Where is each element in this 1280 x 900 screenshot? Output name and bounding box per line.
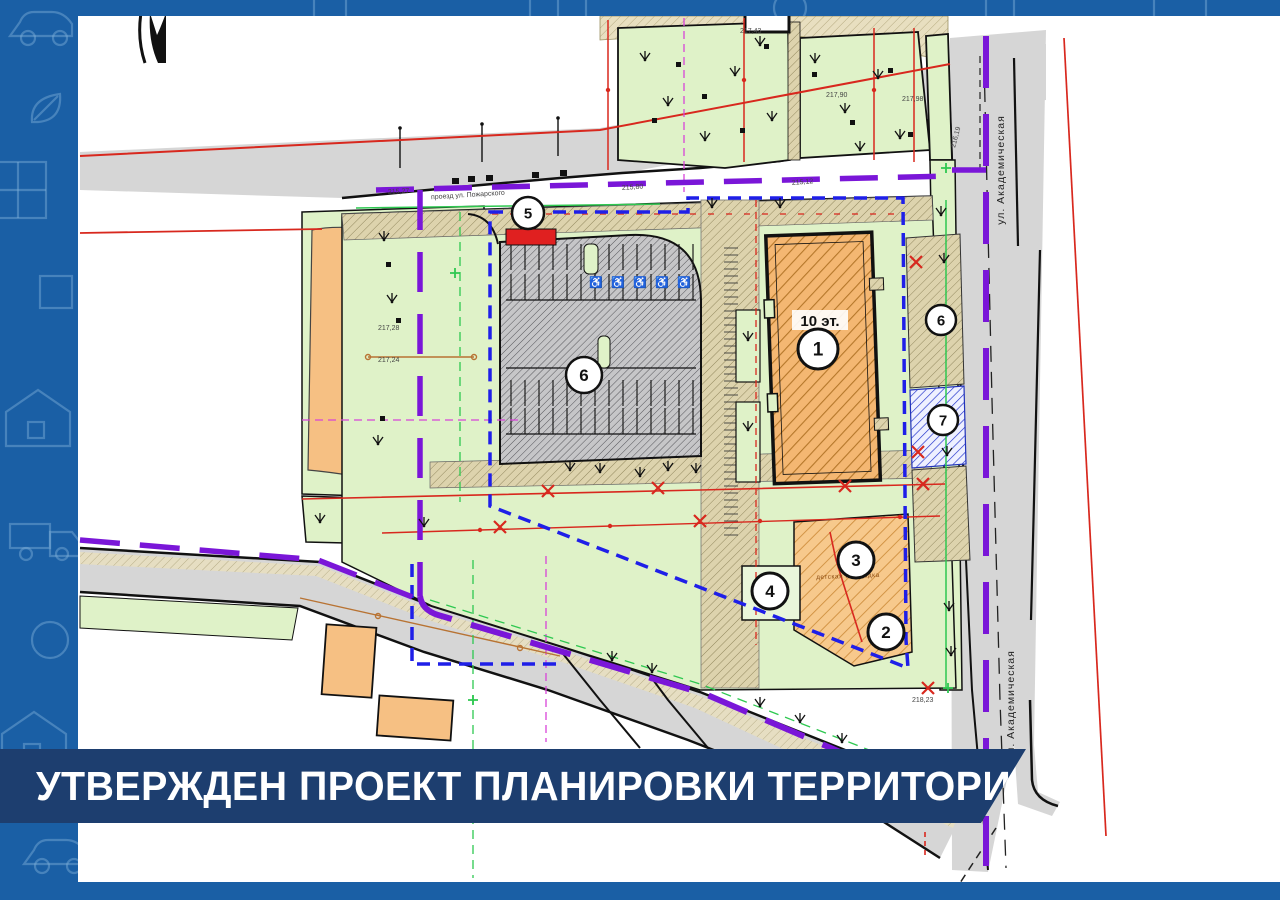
- zone-marker-4: 4: [752, 573, 788, 609]
- zone-marker-2: 2: [868, 614, 904, 650]
- building-1-floors-label: 10 эт.: [800, 313, 839, 330]
- banner-title: УТВЕРЖДЕН ПРОЕКТ ПЛАНИРОВКИ ТЕРРИТОРИИ: [36, 763, 1040, 810]
- elevation-label: 217,90: [826, 92, 848, 99]
- svg-text:6: 6: [579, 366, 588, 385]
- elevation-label: 217,98: [902, 96, 924, 103]
- zone-marker-3: 3: [838, 542, 874, 578]
- elevation-label: 217,43: [740, 28, 762, 35]
- zone-marker-1: 1: [798, 329, 838, 369]
- building-southwest: [322, 624, 377, 697]
- svg-text:6: 6: [937, 313, 945, 330]
- zone-east-strips: [906, 234, 970, 562]
- building-southwest-2: [377, 695, 454, 740]
- street-label-akademicheskaya-north: ул. Академическая: [995, 115, 1007, 225]
- elevation-label: 218,23: [912, 697, 934, 704]
- elevation-label: 217,28: [378, 325, 400, 332]
- elevation-label: 215,80: [622, 184, 644, 192]
- svg-text:7: 7: [939, 413, 947, 430]
- street-label-akademicheskaya-south: ул. Академическая: [1005, 650, 1017, 760]
- svg-text:1: 1: [813, 340, 824, 361]
- svg-text:♿: ♿: [655, 276, 669, 289]
- announcement-card: ♿ ♿ ♿ ♿ ♿ 10 эт.: [0, 0, 1280, 900]
- svg-text:4: 4: [765, 582, 775, 601]
- svg-text:♿: ♿: [589, 276, 603, 289]
- elevation-label: 217,24: [378, 357, 400, 364]
- svg-text:3: 3: [851, 551, 860, 570]
- waste-pad: [506, 229, 556, 245]
- zone-marker-5: 5: [512, 197, 544, 229]
- parking-lot: ♿ ♿ ♿ ♿ ♿: [468, 214, 701, 464]
- svg-text:♿: ♿: [677, 276, 691, 289]
- svg-text:♿: ♿: [633, 276, 647, 289]
- svg-text:5: 5: [524, 206, 532, 223]
- svg-text:♿: ♿: [611, 276, 625, 289]
- svg-text:2: 2: [881, 623, 890, 642]
- zone-marker-6: 6: [566, 357, 602, 393]
- announcement-banner: УТВЕРЖДЕН ПРОЕКТ ПЛАНИРОВКИ ТЕРРИТОРИИ: [0, 749, 1026, 823]
- parcels-top: [600, 12, 952, 168]
- frame-bottom: [0, 882, 1280, 900]
- zone-marker-7: 7: [928, 405, 958, 435]
- zone-marker-6b: 6: [926, 305, 956, 335]
- elevation-label: 215,27: [388, 188, 410, 196]
